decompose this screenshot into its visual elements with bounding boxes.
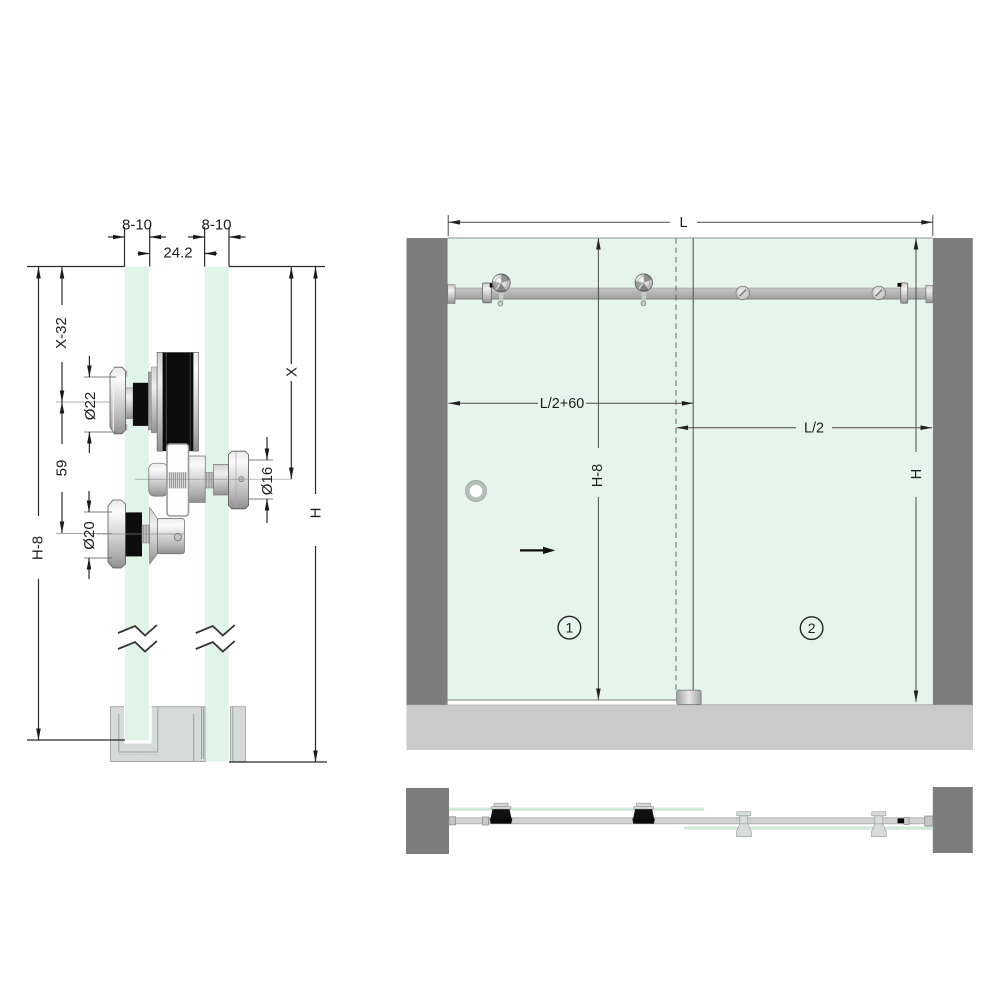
svg-text:8-10: 8-10 — [122, 217, 152, 234]
svg-text:2: 2 — [808, 620, 816, 636]
svg-text:H: H — [909, 469, 925, 479]
svg-text:1: 1 — [566, 620, 574, 636]
svg-text:H-8: H-8 — [590, 464, 606, 487]
svg-text:8-10: 8-10 — [201, 217, 231, 234]
svg-text:H-8: H-8 — [30, 536, 47, 560]
svg-text:X-32: X-32 — [53, 317, 70, 349]
svg-text:H: H — [308, 508, 325, 519]
svg-text:Ø22: Ø22 — [82, 392, 99, 420]
svg-text:X: X — [283, 367, 300, 377]
svg-text:24.2: 24.2 — [163, 245, 192, 262]
svg-text:L: L — [679, 215, 687, 231]
svg-text:59: 59 — [54, 460, 71, 477]
svg-text:L/2+60: L/2+60 — [540, 396, 584, 412]
svg-text:Ø20: Ø20 — [81, 521, 98, 549]
svg-text:Ø16: Ø16 — [259, 467, 276, 495]
svg-text:L/2: L/2 — [804, 420, 824, 436]
